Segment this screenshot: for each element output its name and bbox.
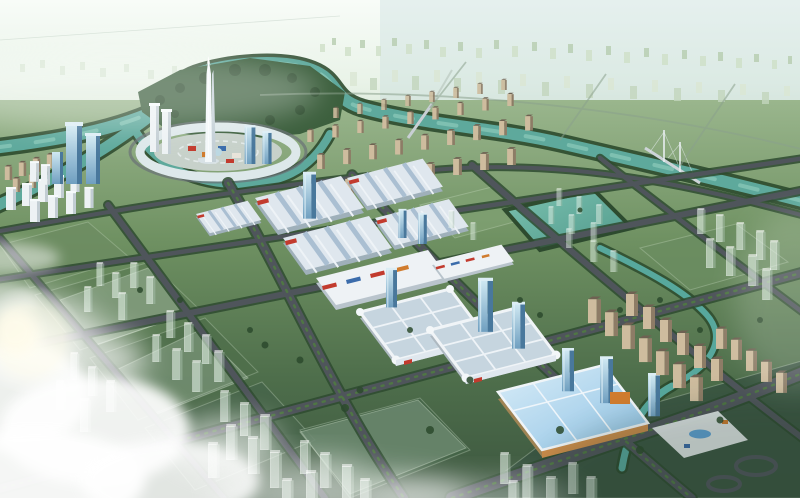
axis-tower-tall [478, 278, 493, 332]
ring-glass-tower [262, 131, 271, 164]
cbd-tower-tall [66, 126, 77, 184]
orange-podium [610, 392, 630, 404]
aerial-city-rendering [0, 0, 800, 498]
ring-glass-tower [245, 125, 256, 164]
rendering-canvas [0, 0, 800, 498]
